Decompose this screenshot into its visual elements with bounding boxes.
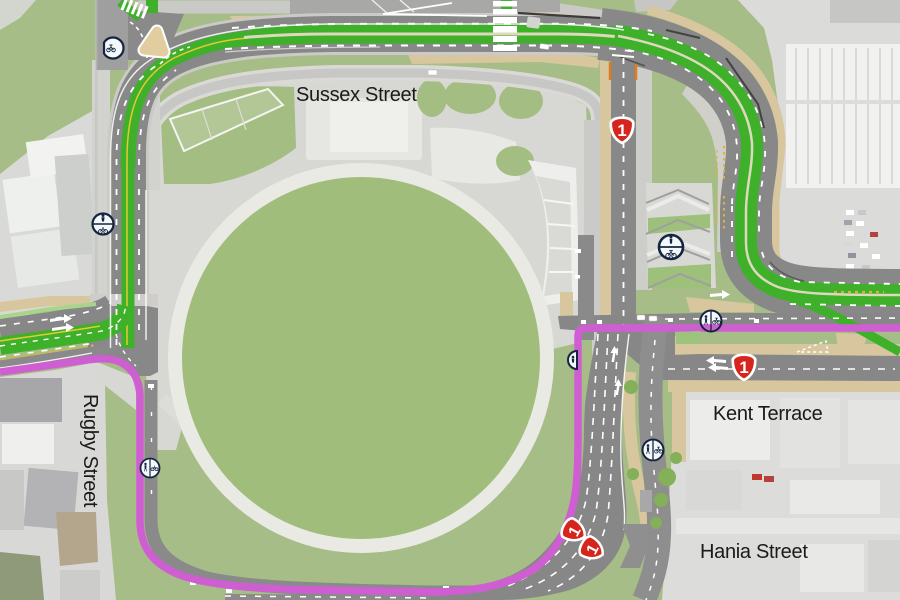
svg-text:1: 1 xyxy=(617,121,626,140)
svg-text:Kent Terrace: Kent Terrace xyxy=(713,403,823,425)
svg-text:Rugby Street: Rugby Street xyxy=(79,394,101,508)
svg-text:1: 1 xyxy=(739,358,748,377)
svg-text:Hania Street: Hania Street xyxy=(700,541,808,563)
svg-text:Sussex Street: Sussex Street xyxy=(296,84,417,106)
